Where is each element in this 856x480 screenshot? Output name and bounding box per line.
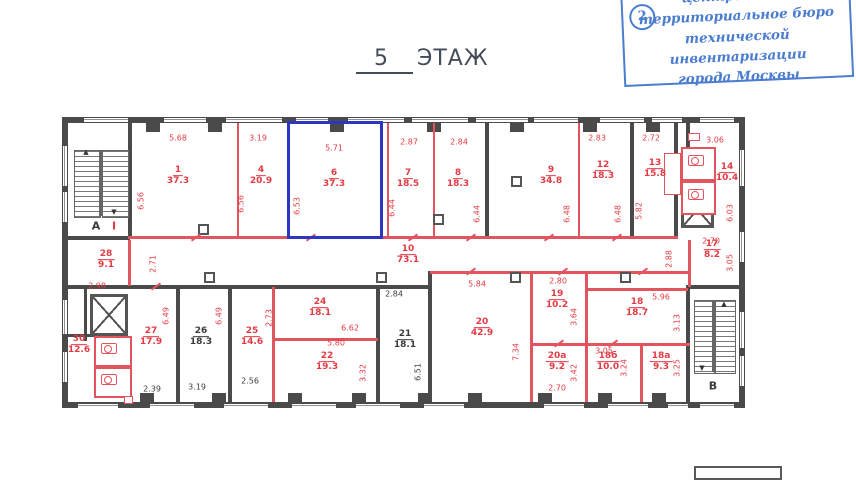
room-number: 19 bbox=[549, 289, 566, 300]
window bbox=[600, 118, 644, 122]
window bbox=[740, 356, 744, 386]
bti-stamp: 2 центральное территориальное бюро техни… bbox=[620, 0, 854, 87]
window bbox=[412, 118, 468, 122]
window bbox=[544, 404, 584, 408]
dim-label: 5.82 bbox=[635, 202, 644, 220]
room-label-28: 289.1 bbox=[98, 249, 115, 271]
room-area: 8.2 bbox=[704, 251, 721, 261]
window bbox=[476, 118, 528, 122]
room-area: 18.3 bbox=[190, 338, 212, 348]
dim-label: 6.48 bbox=[614, 205, 623, 223]
dim-label: 5.96 bbox=[652, 293, 670, 302]
room-label-25: 2514.6 bbox=[241, 326, 263, 348]
dim-label: 2.71 bbox=[149, 255, 158, 273]
partition-wall bbox=[237, 123, 239, 238]
column-marker bbox=[620, 272, 631, 283]
dim-label: 3.42 bbox=[570, 364, 579, 382]
room-number: 26 bbox=[193, 326, 210, 337]
room-label-22: 2219.3 bbox=[316, 351, 338, 373]
room-number: 18а bbox=[650, 351, 673, 362]
wall-pier bbox=[146, 123, 160, 132]
room-number: 4 bbox=[256, 165, 266, 176]
room-area: 17.9 bbox=[140, 338, 162, 348]
window bbox=[740, 312, 744, 348]
room-number: 9 bbox=[546, 165, 556, 176]
wall-segment bbox=[228, 289, 232, 402]
partition-wall bbox=[585, 288, 688, 291]
dim-label: 3.64 bbox=[570, 308, 579, 326]
partition-wall bbox=[640, 345, 643, 402]
wall-pier bbox=[352, 393, 366, 402]
wall-segment bbox=[630, 123, 634, 236]
stair-arrow-icon: ▼ bbox=[699, 364, 704, 372]
room-label-12: 1218.3 bbox=[592, 160, 614, 182]
room-area: 37.3 bbox=[323, 180, 345, 190]
dim-label: 2.84 bbox=[450, 138, 468, 147]
room-label-8: 818.3 bbox=[447, 168, 469, 190]
dim-label: 2.87 bbox=[400, 138, 418, 147]
room-area: 14.6 bbox=[241, 338, 263, 348]
wall-pier bbox=[646, 123, 660, 132]
room-area: 18.5 bbox=[397, 180, 419, 190]
partition-wall bbox=[688, 240, 691, 287]
window bbox=[700, 404, 734, 408]
dim-label: 2.70 bbox=[548, 384, 566, 393]
dim-label: 6.49 bbox=[162, 307, 171, 325]
wall-pier bbox=[652, 393, 666, 402]
page-title: 5ЭТАЖ bbox=[356, 46, 489, 74]
dim-label: 6.62 bbox=[341, 324, 359, 333]
wall-pier bbox=[538, 393, 552, 402]
dim-label: 2.56 bbox=[241, 377, 259, 386]
wall-segment bbox=[176, 289, 180, 402]
room-number: 1 bbox=[173, 165, 183, 176]
dim-label: 2.80 bbox=[549, 277, 567, 286]
window bbox=[78, 404, 118, 408]
sink-icon bbox=[688, 133, 700, 141]
partial-frame bbox=[694, 466, 782, 480]
room-number: 14 bbox=[719, 162, 736, 173]
window bbox=[63, 192, 67, 222]
sink-icon bbox=[124, 396, 133, 404]
dim-label: 2.39 bbox=[143, 385, 161, 394]
wall-pier bbox=[583, 123, 597, 132]
elevator-shaft-icon bbox=[90, 294, 128, 336]
stair-divider bbox=[712, 300, 715, 372]
room-label-20: 2042.9 bbox=[471, 317, 493, 339]
dim-label: 3.25 bbox=[673, 359, 682, 377]
dim-label: 3.32 bbox=[359, 364, 368, 382]
dim-label: 5.84 bbox=[468, 280, 486, 289]
toilet-icon bbox=[688, 155, 704, 166]
floor-number: 5 bbox=[356, 46, 413, 74]
room-number: 6 bbox=[329, 168, 339, 179]
window bbox=[63, 146, 67, 186]
wall-segment bbox=[428, 271, 432, 402]
room-label-7: 718.5 bbox=[397, 168, 419, 190]
room-label-30: 3012.6 bbox=[68, 334, 90, 356]
dim-label: 2.83 bbox=[588, 134, 606, 143]
window bbox=[652, 118, 682, 122]
wall-pier bbox=[510, 123, 524, 132]
window bbox=[292, 404, 336, 408]
room-number: 25 bbox=[244, 326, 261, 337]
room-area: 42.9 bbox=[471, 329, 493, 339]
room-area: 18.3 bbox=[592, 172, 614, 182]
room-area: 12.6 bbox=[68, 346, 90, 356]
window bbox=[356, 404, 400, 408]
dim-label: 6.44 bbox=[473, 205, 482, 223]
column-marker bbox=[433, 214, 444, 225]
room-number: 20а bbox=[546, 351, 569, 362]
room-number: 22 bbox=[319, 351, 336, 362]
partition-wall bbox=[272, 338, 378, 341]
room-number: 24 bbox=[312, 297, 329, 308]
partition-wall bbox=[272, 287, 275, 402]
room-area: 15.8 bbox=[644, 170, 666, 180]
room-area: 9.1 bbox=[98, 261, 115, 271]
dim-label: 7.34 bbox=[512, 343, 521, 361]
dim-label: 5.80 bbox=[327, 339, 345, 348]
room-label-10: 1073.1 bbox=[397, 244, 419, 266]
partition-wall bbox=[128, 236, 678, 239]
stairwell-a-flight bbox=[74, 150, 101, 218]
room-area: 10.0 bbox=[597, 363, 620, 373]
wall-pier bbox=[208, 123, 222, 132]
dim-label: 5.68 bbox=[169, 134, 187, 143]
stair-arrow-icon: ▲ bbox=[83, 148, 88, 156]
floor-plan-scan: 2 центральное территориальное бюро техни… bbox=[0, 0, 856, 474]
room-number: 12 bbox=[595, 160, 612, 171]
room-area: 10.2 bbox=[546, 301, 568, 311]
stair-arrow-icon: ▼ bbox=[111, 208, 116, 216]
room-number: 10 bbox=[400, 244, 417, 255]
partition-wall bbox=[387, 123, 389, 238]
room-area: 9.2 bbox=[546, 363, 569, 373]
wall-pier bbox=[418, 393, 432, 402]
toilet-icon bbox=[101, 374, 117, 385]
dim-label: 3.19 bbox=[188, 383, 206, 392]
wall-pier bbox=[468, 393, 482, 402]
dim-label: 2.70 bbox=[702, 237, 720, 246]
window bbox=[740, 150, 744, 186]
dim-label: 3.19 bbox=[249, 134, 267, 143]
wall-pier bbox=[288, 393, 302, 402]
room-label-20а: 20а9.2 bbox=[546, 351, 569, 373]
room-area: 18.3 bbox=[447, 180, 469, 190]
room-number: 18 bbox=[629, 297, 646, 308]
room-number: 7 bbox=[403, 168, 413, 179]
room-area: 73.1 bbox=[397, 256, 419, 266]
room-area: 9.3 bbox=[650, 363, 673, 373]
wall-pier bbox=[140, 393, 154, 402]
stair-arrow-icon: ▲ bbox=[721, 300, 726, 308]
dim-label: 6.56 bbox=[137, 192, 146, 210]
window bbox=[700, 118, 734, 122]
room-label-9: 934.8 bbox=[540, 165, 562, 187]
room-label-4: 420.9 bbox=[250, 165, 272, 187]
column-marker bbox=[376, 272, 387, 283]
stair-divider bbox=[99, 150, 102, 216]
dim-label: 6.51 bbox=[414, 363, 423, 381]
room-label-21: 2118.1 bbox=[394, 329, 416, 351]
room-area: 34.8 bbox=[540, 177, 562, 187]
room-area: 37.3 bbox=[167, 177, 189, 187]
axis-letter-А: А bbox=[92, 220, 101, 233]
partition-wall bbox=[530, 273, 533, 402]
room-area: 18.7 bbox=[626, 309, 648, 319]
room-number: 13 bbox=[647, 158, 664, 169]
room-number: 21 bbox=[397, 329, 414, 340]
dim-label: 2.88 bbox=[665, 250, 674, 268]
axis-letter-В: В bbox=[709, 380, 717, 393]
window bbox=[63, 300, 67, 334]
wall-pier bbox=[212, 393, 226, 402]
dim-label: 6.48 bbox=[563, 205, 572, 223]
duct-box bbox=[664, 153, 681, 195]
room-area: 18.1 bbox=[309, 309, 331, 319]
dim-label: 2.98 bbox=[88, 282, 106, 291]
dim-label: 6.53 bbox=[293, 197, 302, 215]
window bbox=[740, 232, 744, 262]
wall-segment bbox=[686, 285, 739, 289]
dim-label: 5.71 bbox=[325, 144, 343, 153]
window bbox=[150, 404, 194, 408]
room-number: 20 bbox=[474, 317, 491, 328]
wall-segment bbox=[376, 289, 380, 402]
dim-label: 6.56 bbox=[237, 195, 246, 213]
room-label-27: 2717.9 bbox=[140, 326, 162, 348]
room-area: 10.4 bbox=[716, 174, 738, 184]
toilet-icon bbox=[101, 343, 117, 354]
window bbox=[226, 118, 282, 122]
dim-label: 3.13 bbox=[673, 314, 682, 332]
column-marker bbox=[204, 272, 215, 283]
dim-label: 6.44 bbox=[388, 199, 397, 217]
partition-wall bbox=[128, 240, 131, 286]
room-label-1: 137.3 bbox=[167, 165, 189, 187]
column-marker bbox=[511, 176, 522, 187]
room-label-13: 1315.8 bbox=[644, 158, 666, 180]
window bbox=[224, 404, 268, 408]
dim-label: 3.06 bbox=[706, 136, 724, 145]
column-marker bbox=[510, 272, 521, 283]
window bbox=[608, 404, 648, 408]
dim-label: 2.72 bbox=[642, 134, 660, 143]
dim-label: 3.05 bbox=[726, 254, 735, 272]
floor-word: ЭТАЖ bbox=[417, 46, 489, 71]
wall-segment bbox=[485, 123, 489, 236]
room-number: 27 bbox=[143, 326, 160, 337]
room-number: 28 bbox=[98, 249, 115, 260]
room-number: 30 bbox=[71, 334, 88, 345]
room-label-24: 2418.1 bbox=[309, 297, 331, 319]
room-area: 19.3 bbox=[316, 363, 338, 373]
dim-label: 6.03 bbox=[726, 204, 735, 222]
room-label-6: 637.3 bbox=[323, 168, 345, 190]
window bbox=[84, 118, 128, 122]
stairwell-b-flight bbox=[715, 300, 736, 374]
dim-label: 6.49 bbox=[215, 307, 224, 325]
dim-label: 3.05 bbox=[595, 347, 613, 356]
room-label-18: 1818.7 bbox=[626, 297, 648, 319]
axis-letter-I: I bbox=[112, 220, 116, 233]
room-area: 18.1 bbox=[394, 341, 416, 351]
partition-wall bbox=[578, 123, 580, 238]
window bbox=[668, 404, 688, 408]
room-number: 8 bbox=[453, 168, 463, 179]
room-label-19: 1910.2 bbox=[546, 289, 568, 311]
window bbox=[164, 118, 206, 122]
dim-label: 2.73 bbox=[265, 309, 274, 327]
dim-label: 3.24 bbox=[620, 359, 629, 377]
room-area: 20.9 bbox=[250, 177, 272, 187]
wall-segment bbox=[62, 236, 130, 240]
window bbox=[424, 404, 464, 408]
room-label-18а: 18а9.3 bbox=[650, 351, 673, 373]
window bbox=[63, 352, 67, 382]
partition-wall bbox=[585, 273, 588, 402]
dim-label: 2.84 bbox=[385, 290, 403, 299]
room-label-26: 2618.3 bbox=[190, 326, 212, 348]
toilet-icon bbox=[688, 189, 704, 200]
window bbox=[534, 118, 578, 122]
room-label-14: 1410.4 bbox=[716, 162, 738, 184]
wall-pier bbox=[598, 393, 612, 402]
